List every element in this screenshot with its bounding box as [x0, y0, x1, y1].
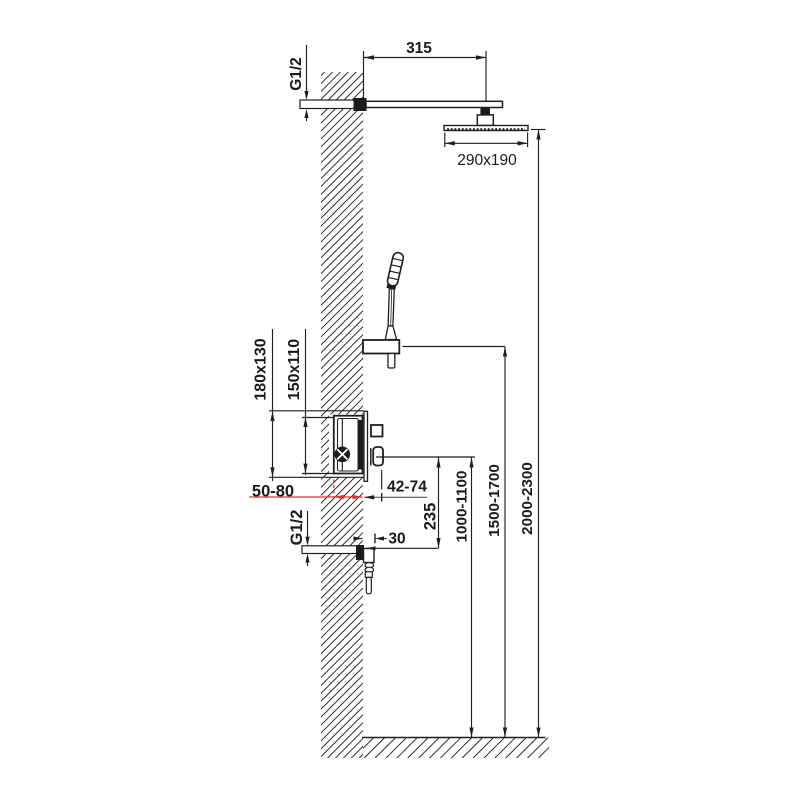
svg-text:42-74: 42-74 [387, 479, 427, 496]
svg-text:180x130: 180x130 [253, 338, 270, 400]
svg-text:290x190: 290x190 [457, 152, 517, 169]
svg-text:50-80: 50-80 [252, 483, 294, 501]
svg-text:30: 30 [388, 531, 405, 548]
svg-text:1500-1700: 1500-1700 [486, 464, 503, 537]
svg-text:235: 235 [422, 503, 440, 531]
svg-text:G1/2: G1/2 [288, 57, 305, 91]
svg-text:1000-1100: 1000-1100 [454, 471, 471, 543]
svg-text:2000-2300: 2000-2300 [519, 462, 536, 535]
svg-text:150x110: 150x110 [286, 339, 303, 401]
svg-text:G1/2: G1/2 [288, 510, 306, 546]
svg-text:315: 315 [406, 40, 432, 57]
